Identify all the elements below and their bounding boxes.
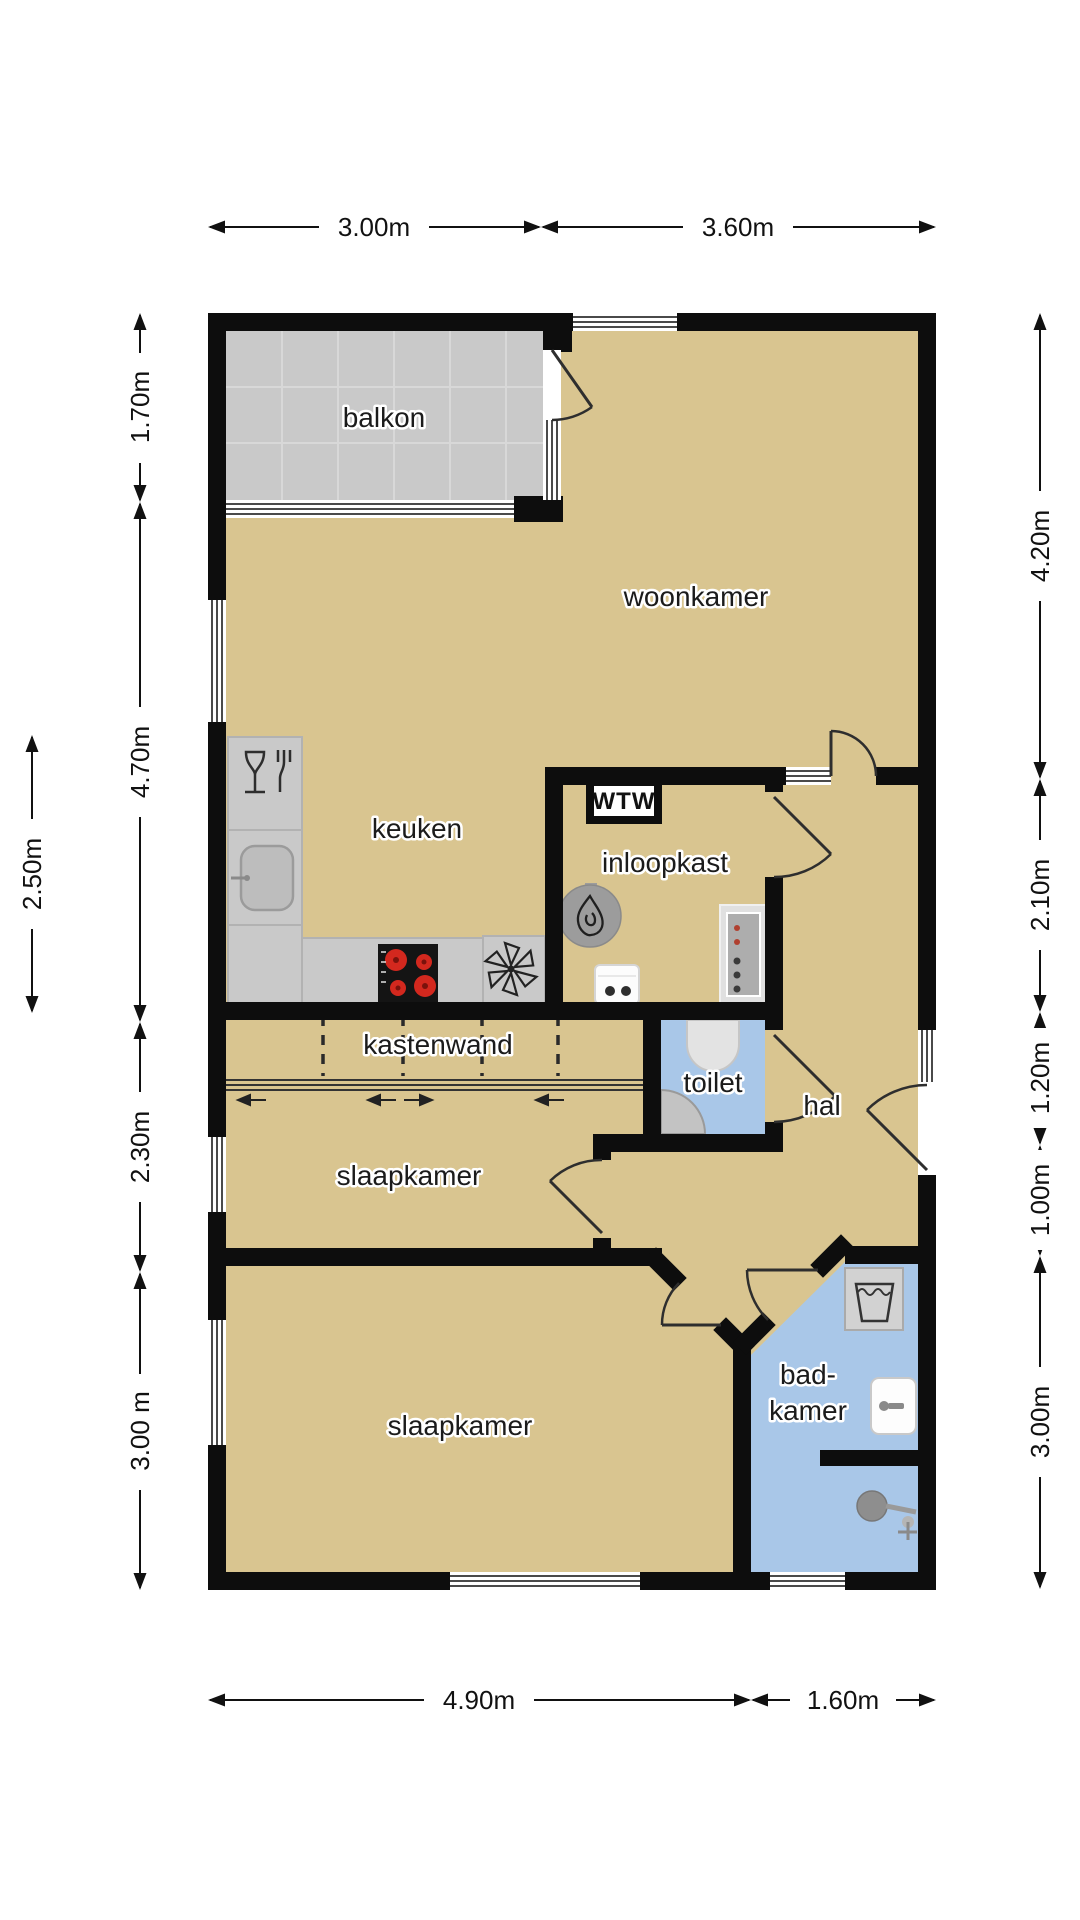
wall-bathroom-left: [733, 1337, 751, 1590]
window-hall-sidelight: [786, 767, 831, 785]
dim-bottom-2-label: 1.60m: [807, 1685, 879, 1715]
window-bedroom2-left: [208, 1320, 226, 1445]
dim-right-2: 2.10m: [1023, 779, 1057, 1012]
wall: [208, 722, 226, 1137]
dim-left-4-label: 3.00 m: [125, 1391, 155, 1471]
label-keuken: keuken: [372, 813, 462, 844]
wall: [918, 331, 936, 1030]
wall-toilet-left: [643, 1020, 661, 1152]
cooktop-icon: [378, 944, 438, 1002]
wall-kitchen-bottom: [208, 1002, 783, 1020]
dim-right-5-label: 3.00m: [1025, 1386, 1055, 1458]
wtw-unit: WTW: [586, 778, 662, 824]
dim-left-2-label: 4.70m: [125, 726, 155, 798]
electrical-panel-icon: [720, 905, 767, 1004]
window-balcony-right: [543, 420, 561, 500]
wall-pillar: [543, 331, 572, 352]
power-outlet-icon: [595, 965, 639, 1004]
dim-right-3: 1.20m: [1023, 1012, 1057, 1145]
dim-right-1: 4.20m: [1023, 313, 1057, 779]
wall: [876, 767, 918, 785]
dim-bottom-1-label: 4.90m: [443, 1685, 515, 1715]
window-entry-side: [918, 1030, 936, 1082]
floor-plan-page: WTW: [0, 0, 1080, 1920]
label-hal: hal: [803, 1090, 840, 1121]
dim-bottom-2: 1.60m: [751, 1683, 936, 1717]
dim-right-4-label: 1.00m: [1025, 1164, 1055, 1236]
dim-left-inner: 2.50m: [15, 735, 49, 1013]
label-woonkamer: woonkamer: [623, 581, 769, 612]
label-badkamer-2: kamer: [769, 1395, 847, 1426]
wall-toilet-bottom: [593, 1134, 783, 1152]
wtw-label: WTW: [593, 788, 656, 815]
label-badkamer-1: bad-: [780, 1359, 836, 1390]
outlet-dot-2: [621, 986, 631, 996]
outlet-dot-1: [605, 986, 615, 996]
dim-left-2: 4.70m: [123, 502, 157, 1022]
dim-right-5: 3.00m: [1023, 1256, 1057, 1589]
toilet-icon: [687, 1020, 739, 1071]
dim-left-inner-label: 2.50m: [17, 838, 47, 910]
dim-top-1: 3.00m: [208, 210, 541, 244]
wall-bathroom-top: [845, 1246, 918, 1264]
wall: [208, 1445, 226, 1590]
label-inloopkast: inloopkast: [602, 847, 728, 878]
wall-closet-left: [545, 767, 563, 1002]
window-bedroom2-bottom: [450, 1572, 640, 1590]
wall: [208, 313, 573, 331]
window-bathroom-bottom: [770, 1572, 845, 1590]
dim-right-3-label: 1.20m: [1025, 1042, 1055, 1114]
label-balkon: balkon: [343, 402, 426, 433]
counter-left: [228, 925, 302, 1004]
wall-hall-left: [765, 767, 783, 792]
dim-left-1: 1.70m: [123, 313, 157, 502]
bathroom-sink-icon: [871, 1378, 916, 1434]
dim-right-4: 1.00m: [1023, 1145, 1057, 1256]
dim-left-1-label: 1.70m: [125, 371, 155, 443]
label-slaapkamer-2: slaapkamer: [388, 1410, 533, 1441]
label-toilet: toilet: [683, 1067, 742, 1098]
window-bedroom1-left: [208, 1137, 226, 1212]
window-kitchen-left: [208, 600, 226, 722]
wall: [208, 1572, 450, 1590]
dim-right-1-label: 4.20m: [1025, 510, 1055, 582]
dim-left-4: 3.00 m: [123, 1272, 157, 1590]
window-balcony-bottom: [226, 500, 514, 518]
floor-plan-drawing: WTW: [0, 0, 1080, 1920]
label-slaapkamer-1: slaapkamer: [337, 1160, 482, 1191]
window-top-livingroom: [573, 313, 677, 331]
dim-left-3-label: 2.30m: [125, 1111, 155, 1183]
label-kastenwand: kastenwand: [363, 1029, 512, 1060]
wall: [918, 1175, 936, 1590]
wall: [677, 313, 936, 331]
dim-top-2-label: 3.60m: [702, 212, 774, 242]
wall: [208, 331, 226, 600]
sink-tap-dot: [244, 875, 250, 881]
wall-bedroom-divider: [208, 1248, 662, 1266]
dim-bottom-1: 4.90m: [208, 1683, 751, 1717]
dim-top-2: 3.60m: [541, 210, 936, 244]
wall-shower-stub: [820, 1450, 918, 1466]
dim-top-1-label: 3.00m: [338, 212, 410, 242]
dim-left-3: 2.30m: [123, 1022, 157, 1272]
wall-closet-top: [545, 767, 786, 785]
dim-right-2-label: 2.10m: [1025, 859, 1055, 931]
washing-machine-icon: [845, 1268, 903, 1330]
wall: [845, 1572, 936, 1590]
